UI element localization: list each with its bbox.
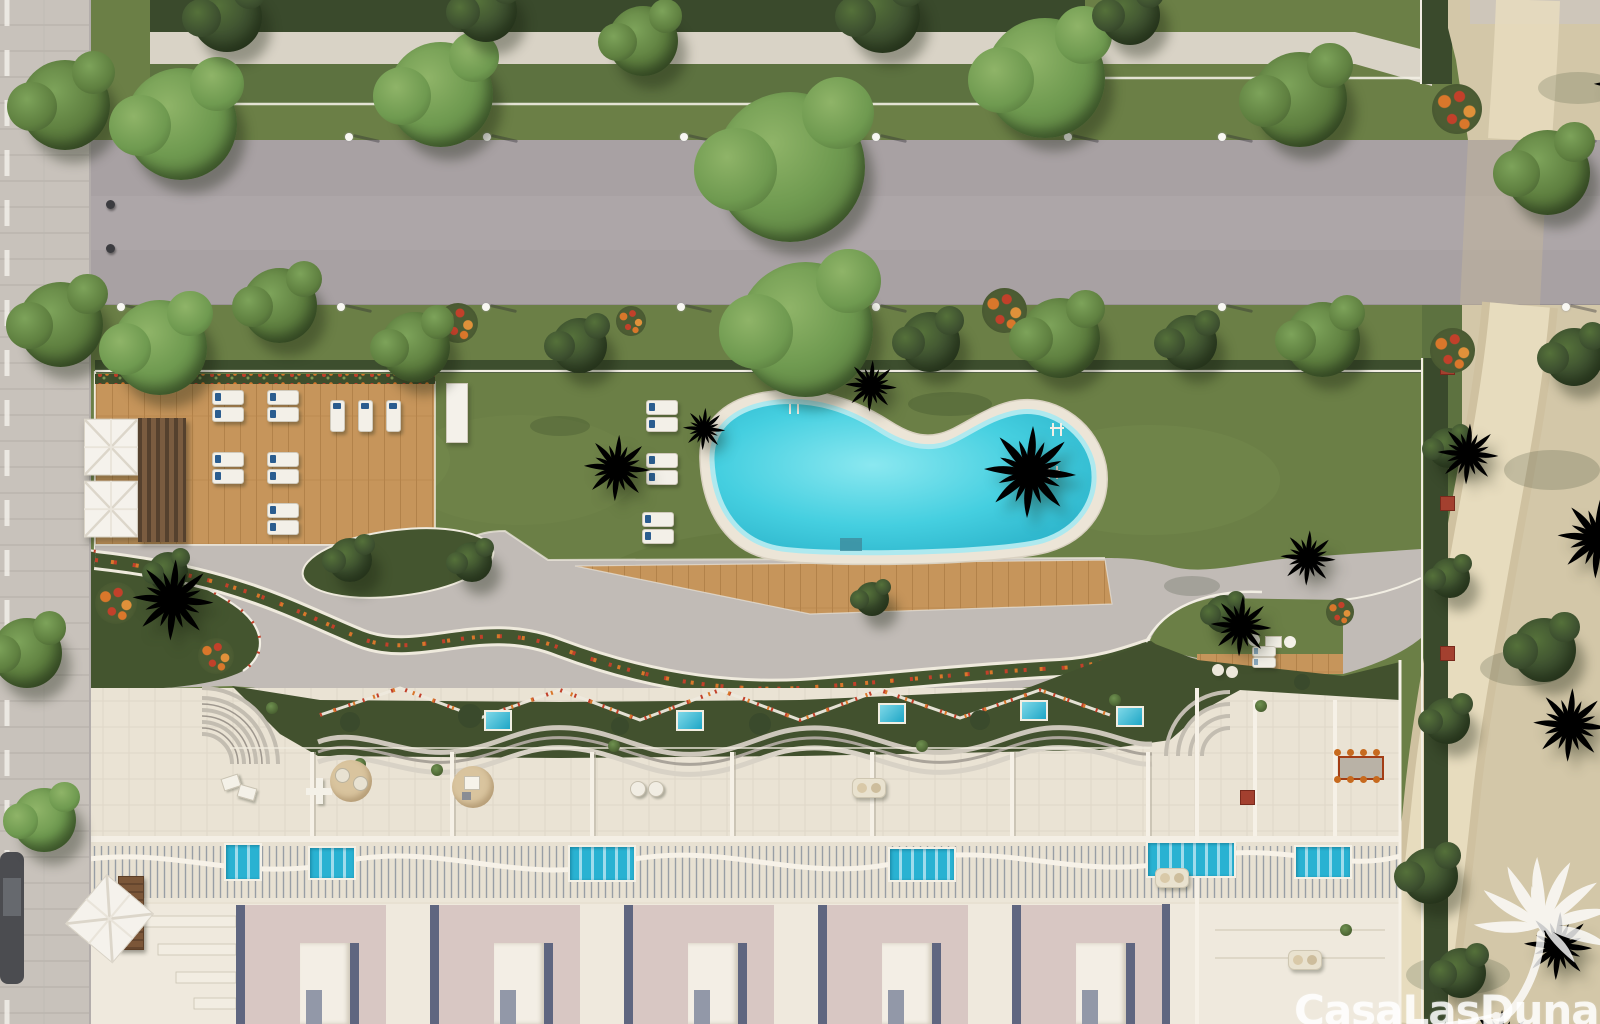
sun-lounger: [212, 469, 244, 484]
palm-tree: [930, 372, 1030, 472]
sun-lounger: [267, 452, 299, 467]
street-lamp: [872, 126, 906, 150]
terrace-plant: [916, 740, 928, 752]
bollard: [106, 244, 115, 253]
flower-cluster: [1432, 84, 1482, 134]
tree: [900, 312, 960, 372]
flower-cluster: [198, 638, 234, 674]
tree: [1020, 298, 1100, 378]
balcony-pool: [308, 846, 356, 880]
tree: [855, 582, 889, 616]
outdoor-dining-set: [1330, 750, 1388, 782]
planter: [1240, 790, 1255, 805]
watermark-text: CasaLasDunas: [1294, 986, 1600, 1024]
sun-lounger: [386, 400, 401, 432]
sun-lounger: [267, 503, 299, 518]
tree: [1252, 52, 1347, 147]
tree: [452, 542, 492, 582]
palm-tree: [658, 383, 704, 429]
sun-lounger: [642, 529, 674, 544]
palm-tree: [85, 512, 173, 600]
palm-tree: [1510, 450, 1598, 538]
street-lamp: [345, 126, 379, 150]
tree: [1162, 315, 1217, 370]
tree: [985, 18, 1105, 138]
tree: [18, 282, 103, 367]
tree: [1545, 328, 1600, 386]
tree: [608, 6, 678, 76]
street-lamp: [482, 296, 516, 320]
sun-lounger: [1252, 646, 1276, 657]
tree: [1402, 848, 1458, 904]
street-lamp: [1218, 296, 1252, 320]
plunge-pool: [676, 710, 704, 731]
sun-lounger: [358, 400, 373, 432]
apartment-wall-unit: [236, 905, 386, 1024]
sun-lounger: [267, 520, 299, 535]
balcony-pool: [568, 845, 636, 882]
plunge-pool: [484, 710, 512, 731]
terrace-plant: [1109, 694, 1121, 706]
palm-tree: [1175, 560, 1241, 626]
tree: [1430, 558, 1470, 598]
sun-lounger: [267, 469, 299, 484]
parasol: [84, 418, 138, 476]
tree: [20, 60, 110, 150]
sun-lounger: [212, 390, 244, 405]
tree: [1505, 130, 1590, 215]
tree: [1424, 698, 1470, 744]
terrace-sofa: [852, 778, 886, 798]
ottoman-pair: [1212, 664, 1240, 678]
sun-lounger: [267, 407, 299, 422]
terrace-plant: [431, 764, 443, 776]
tree: [242, 268, 317, 343]
street-lamp: [677, 296, 711, 320]
plunge-pool: [878, 703, 906, 724]
palm-tree: [1248, 498, 1308, 558]
tree: [388, 42, 493, 147]
sun-lounger: [646, 470, 678, 485]
street-lamp: [872, 296, 906, 320]
tree: [845, 0, 920, 53]
tree: [12, 788, 76, 852]
palm-tree: [815, 330, 871, 386]
palm-tree: [1484, 872, 1558, 946]
street-lamp: [1562, 296, 1596, 320]
planter: [1440, 496, 1455, 511]
bollard: [106, 200, 115, 209]
terrace-sofa: [1155, 868, 1189, 888]
terrace-plant: [1340, 924, 1352, 936]
aerial-site-render: CasaLasDunas: [0, 0, 1600, 1024]
terrace-plant: [608, 740, 620, 752]
apartment-wall-unit: [818, 905, 968, 1024]
terrace-table: [306, 778, 332, 804]
balcony-pool: [224, 843, 262, 881]
flower-cluster: [1326, 598, 1354, 626]
tree: [715, 92, 865, 242]
sun-lounger: [642, 512, 674, 527]
apartment-wall-unit: [624, 905, 774, 1024]
palm-tree: [1490, 645, 1570, 725]
tree: [1285, 302, 1360, 377]
plunge-pool: [1020, 700, 1048, 721]
terrace-rug-seating: [330, 760, 372, 802]
palm-tree: [545, 396, 617, 468]
terrace-sofa: [1288, 950, 1322, 970]
balcony-pool: [1294, 845, 1352, 879]
sun-lounger: [212, 407, 244, 422]
balcony-pool: [888, 847, 956, 882]
flower-cluster: [1430, 328, 1475, 373]
tree: [192, 0, 262, 52]
flower-cluster: [616, 306, 646, 336]
apartment-wall-unit: [1012, 905, 1162, 1024]
terrace-plant: [1255, 700, 1267, 712]
terrace-rug-seating: [452, 766, 494, 808]
sun-lounger: [267, 390, 299, 405]
apartment-wall-unit: [430, 905, 580, 1024]
scene-objects: [0, 0, 1600, 1024]
sun-lounger: [212, 452, 244, 467]
palm-tree: [1556, 16, 1600, 86]
planter: [1440, 646, 1455, 661]
tree: [552, 318, 607, 373]
terrace-plant: [266, 702, 278, 714]
street-lamp: [483, 126, 517, 150]
tree: [125, 68, 237, 180]
tree: [0, 618, 62, 688]
sun-lounger: [330, 400, 345, 432]
tree: [328, 538, 372, 582]
street-lamp: [337, 296, 371, 320]
tree: [112, 300, 207, 395]
plunge-pool: [1116, 706, 1144, 727]
sun-lounger: [646, 453, 678, 468]
terrace-chairs: [630, 781, 664, 797]
tree: [380, 312, 450, 382]
street-lamp: [1218, 126, 1252, 150]
sun-lounger: [1252, 657, 1276, 668]
pool-cabinet: [446, 383, 468, 443]
terrace-chairs: [222, 774, 258, 804]
palm-tree: [1402, 388, 1468, 454]
